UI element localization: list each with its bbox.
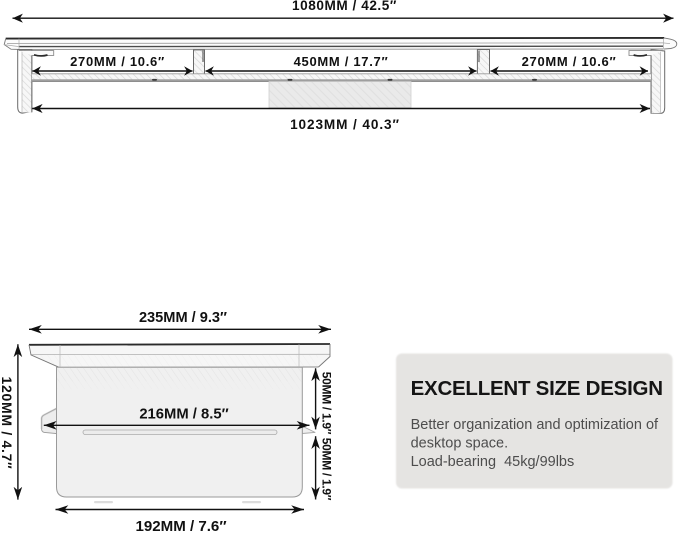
svg-text:1023MM / 40.3″: 1023MM / 40.3″	[290, 117, 400, 132]
svg-text:216MM / 8.5″: 216MM / 8.5″	[139, 407, 228, 423]
svg-text:50MM / 1.9″: 50MM / 1.9″	[320, 438, 334, 501]
svg-text:270MM / 10.6″: 270MM / 10.6″	[522, 54, 617, 69]
svg-text:270MM / 10.6″: 270MM / 10.6″	[70, 54, 165, 69]
svg-text:235MM / 9.3″: 235MM / 9.3″	[139, 310, 227, 326]
svg-text:192MM / 7.6″: 192MM / 7.6″	[135, 518, 226, 533]
svg-text:EXCELLENT SIZE DESIGN: EXCELLENT SIZE DESIGN	[411, 377, 663, 400]
svg-text:1080MM / 42.5″: 1080MM / 42.5″	[292, 0, 397, 13]
svg-text:50MM / 1.9″: 50MM / 1.9″	[320, 372, 334, 435]
svg-text:desktop space.: desktop space.	[411, 436, 509, 452]
svg-text:120MM / 4.7″: 120MM / 4.7″	[0, 377, 15, 470]
svg-text:Better organization and optimi: Better organization and optimization of	[411, 417, 659, 433]
svg-text:450MM / 17.7″: 450MM / 17.7″	[294, 54, 389, 69]
svg-text:Load-bearing 45kg/99lbs: Load-bearing 45kg/99lbs	[411, 454, 575, 470]
